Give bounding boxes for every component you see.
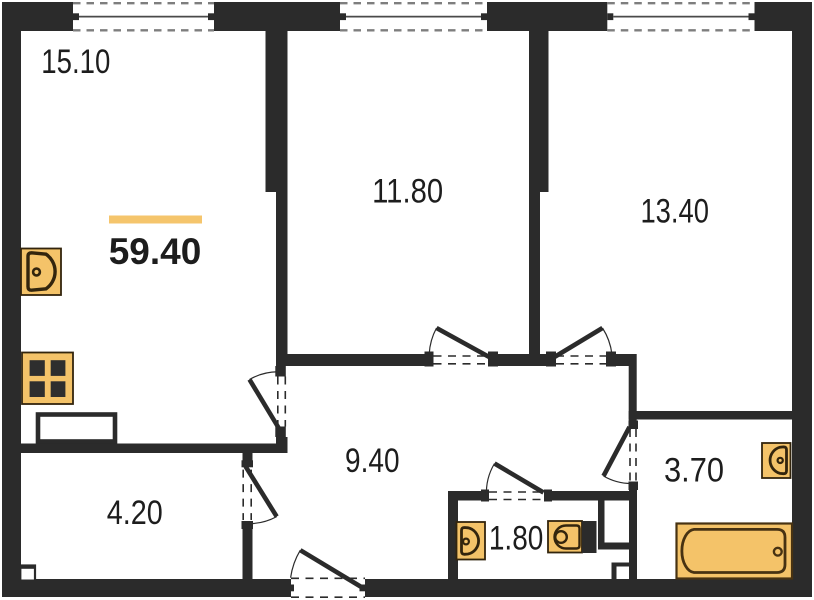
svg-text:4.20: 4.20 <box>107 494 163 532</box>
svg-text:11.80: 11.80 <box>372 172 443 210</box>
svg-text:15.10: 15.10 <box>41 43 110 81</box>
svg-text:13.40: 13.40 <box>640 192 709 230</box>
svg-text:9.40: 9.40 <box>345 442 400 480</box>
svg-text:1.80: 1.80 <box>489 520 544 558</box>
svg-text:3.70: 3.70 <box>664 452 724 490</box>
svg-text:59.40: 59.40 <box>109 231 202 272</box>
